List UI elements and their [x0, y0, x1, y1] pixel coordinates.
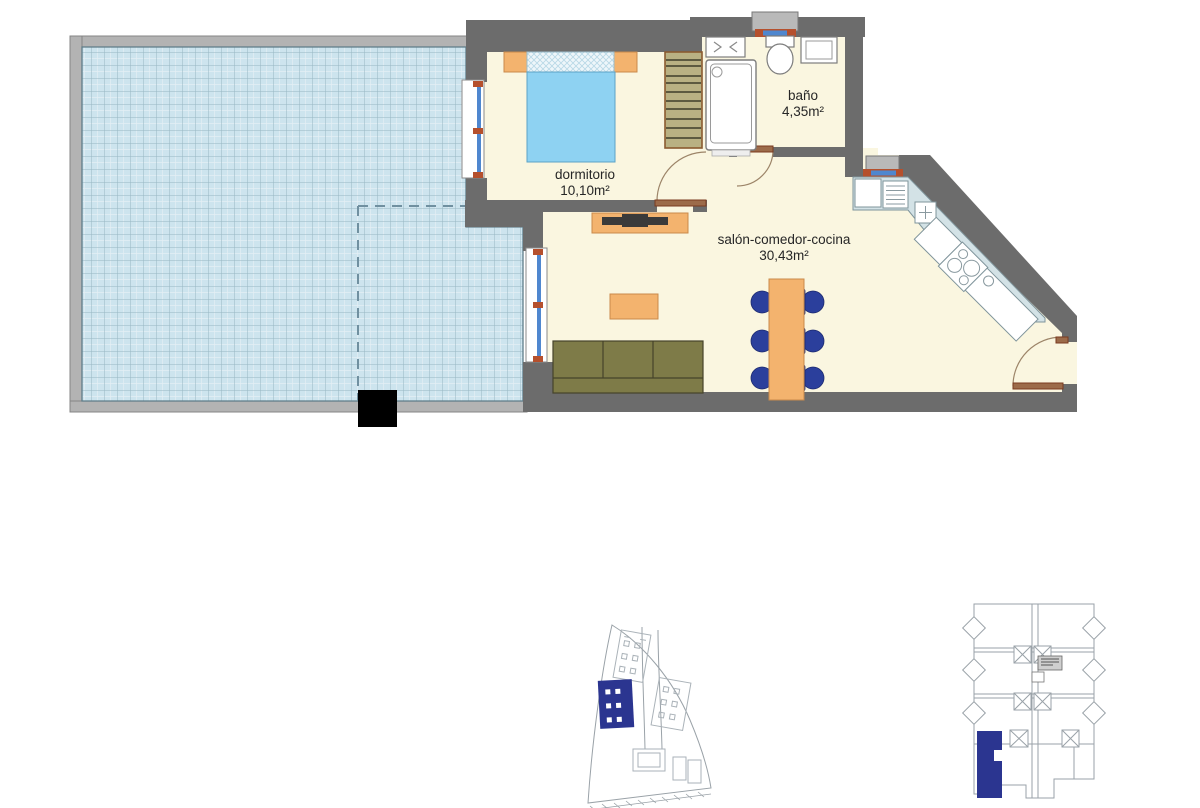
window-bathroom — [752, 12, 798, 37]
room-label-bano: baño 4,35m² — [753, 88, 853, 120]
floor-plan-page: dormitorio 10,10m² baño 4,35m² salón-com… — [0, 0, 1200, 808]
nightstand-right — [614, 52, 637, 72]
room-name: salón-comedor-cocina — [718, 232, 851, 247]
dishwasher — [883, 181, 908, 208]
dining-set — [751, 279, 824, 400]
window-salon — [526, 248, 547, 362]
sofa — [553, 341, 703, 393]
kitchen-sink — [915, 202, 936, 223]
key-unit-highlight — [977, 731, 1002, 798]
towel-radiator — [706, 37, 745, 57]
wardrobe — [665, 52, 702, 148]
fridge — [855, 179, 881, 207]
window-kitchen — [863, 156, 903, 177]
bathtub — [706, 60, 756, 156]
tv-unit — [592, 213, 688, 233]
bed-mattress — [527, 72, 615, 162]
terrace-column-marker — [358, 390, 397, 427]
site-plan-left — [588, 625, 711, 808]
window-bedroom — [462, 80, 484, 178]
room-label-salon: salón-comedor-cocina 30,43m² — [698, 232, 870, 264]
room-area: 30,43m² — [698, 248, 870, 264]
site-building-highlight — [598, 679, 634, 729]
room-name: baño — [788, 88, 818, 103]
washbasin — [801, 37, 837, 63]
coffee-table — [610, 294, 658, 319]
room-area: 10,10m² — [518, 183, 652, 199]
bed-pillows — [527, 52, 614, 72]
site-plan-right — [963, 604, 1106, 798]
floor-plan-drawing — [0, 0, 1200, 808]
room-name: dormitorio — [555, 167, 615, 182]
terrace — [70, 36, 527, 427]
nightstand-left — [504, 52, 527, 72]
terrace-tiles — [82, 47, 523, 401]
dining-table — [769, 279, 804, 400]
room-label-dormitorio: dormitorio 10,10m² — [518, 167, 652, 199]
room-area: 4,35m² — [753, 104, 853, 120]
toilet — [766, 36, 794, 74]
